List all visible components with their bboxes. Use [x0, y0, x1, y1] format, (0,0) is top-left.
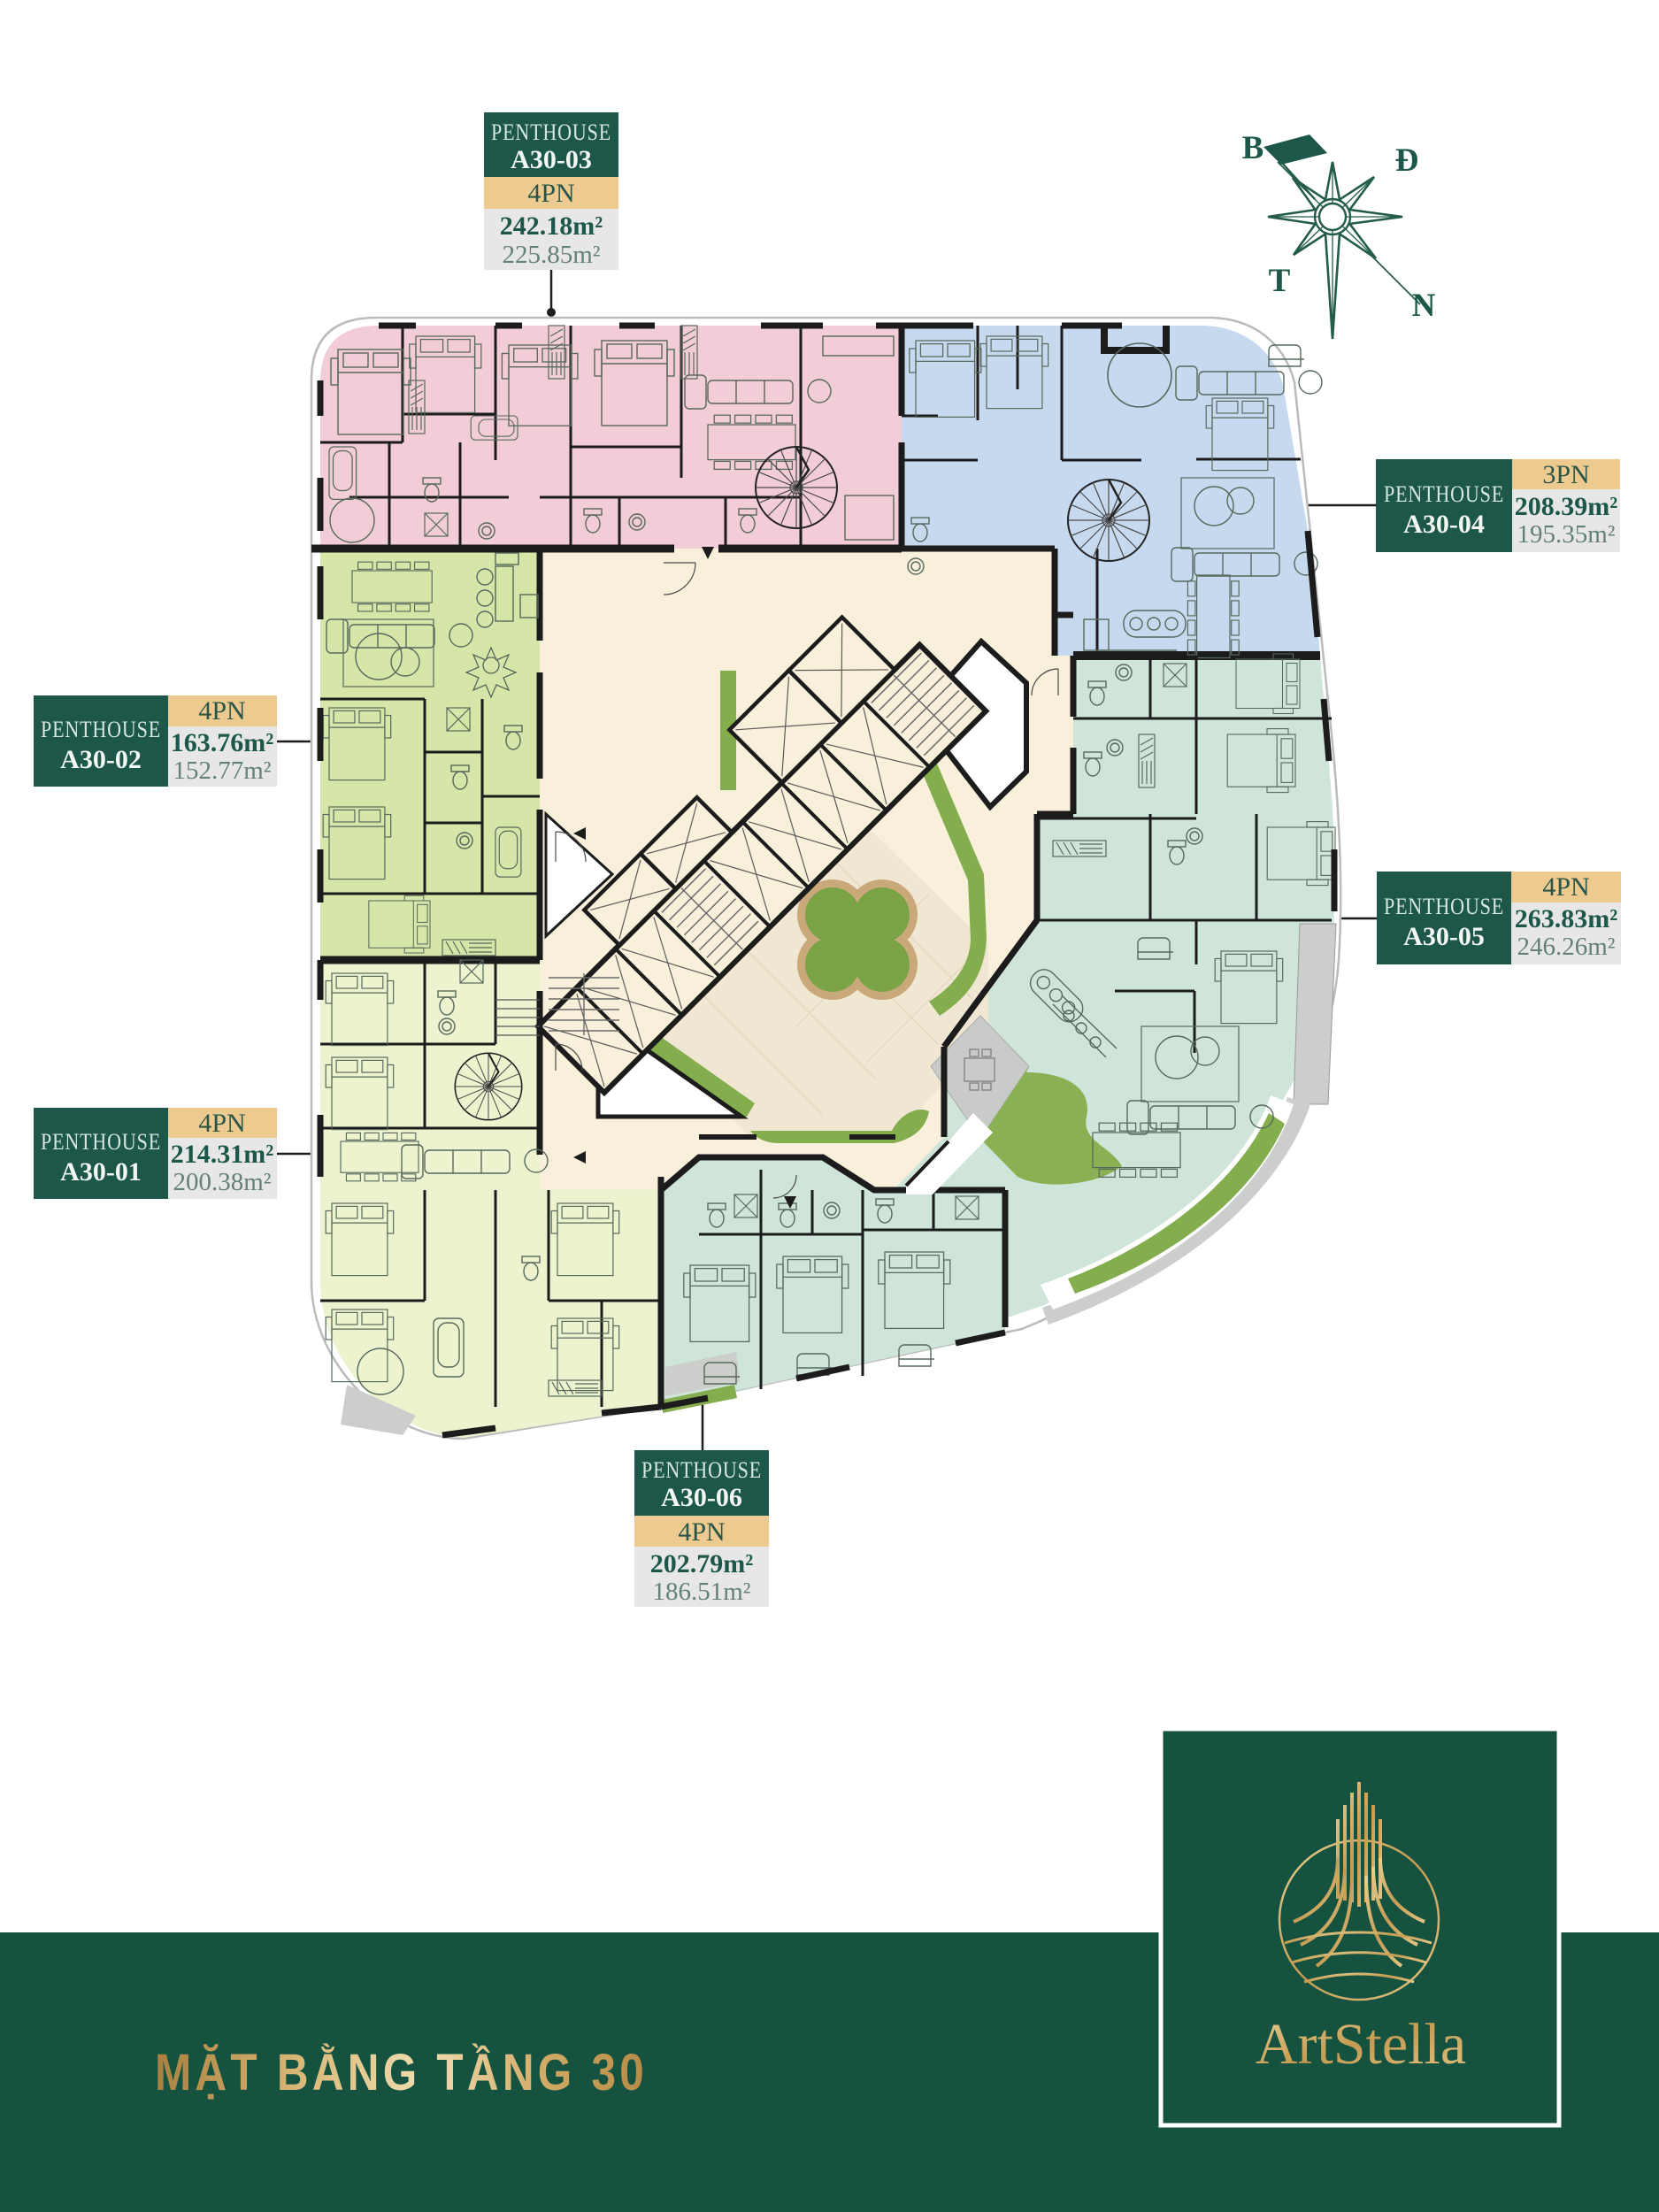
svg-text:PENTHOUSE: PENTHOUSE	[41, 717, 161, 742]
svg-text:208.39m²: 208.39m²	[1515, 492, 1617, 521]
svg-text:A30-04: A30-04	[1403, 510, 1485, 539]
svg-text:152.77m²: 152.77m²	[173, 757, 271, 785]
svg-text:MẶT BẰNG TẦNG 30: MẶT BẰNG TẦNG 30	[155, 2044, 648, 2101]
svg-text:A30-06: A30-06	[661, 1483, 742, 1512]
svg-text:195.35m²: 195.35m²	[1517, 520, 1615, 549]
svg-text:PENTHOUSE: PENTHOUSE	[1384, 481, 1504, 507]
svg-text:N: N	[1412, 288, 1436, 324]
svg-text:225.85m²: 225.85m²	[502, 241, 600, 269]
svg-text:PENTHOUSE: PENTHOUSE	[641, 1457, 762, 1483]
svg-text:4PN: 4PN	[527, 179, 574, 208]
svg-text:186.51m²: 186.51m²	[652, 1578, 750, 1606]
svg-text:A30-03: A30-03	[511, 145, 592, 174]
svg-text:200.38m²: 200.38m²	[173, 1168, 271, 1196]
svg-text:PENTHOUSE: PENTHOUSE	[491, 119, 611, 145]
svg-text:3PN: 3PN	[1542, 460, 1589, 489]
svg-text:PENTHOUSE: PENTHOUSE	[41, 1129, 161, 1155]
svg-text:4PN: 4PN	[678, 1517, 725, 1547]
svg-text:B: B	[1242, 130, 1264, 166]
svg-text:ArtStella: ArtStella	[1256, 2012, 1466, 2077]
svg-text:246.26m²: 246.26m²	[1517, 933, 1615, 961]
svg-text:T: T	[1269, 263, 1291, 299]
svg-text:4PN: 4PN	[198, 696, 245, 726]
svg-text:202.79m²: 202.79m²	[650, 1549, 753, 1578]
svg-text:A30-01: A30-01	[60, 1157, 142, 1187]
svg-text:PENTHOUSE: PENTHOUSE	[1384, 894, 1504, 919]
svg-text:A30-02: A30-02	[60, 745, 142, 774]
svg-text:4PN: 4PN	[198, 1109, 245, 1138]
svg-text:214.31m²: 214.31m²	[171, 1140, 273, 1169]
svg-text:A30-05: A30-05	[1403, 922, 1485, 951]
svg-text:4PN: 4PN	[1542, 872, 1589, 902]
svg-text:263.83m²: 263.83m²	[1515, 904, 1617, 933]
svg-text:242.18m²: 242.18m²	[500, 211, 603, 241]
svg-text:163.76m²: 163.76m²	[171, 728, 273, 757]
svg-text:Đ: Đ	[1395, 142, 1419, 179]
